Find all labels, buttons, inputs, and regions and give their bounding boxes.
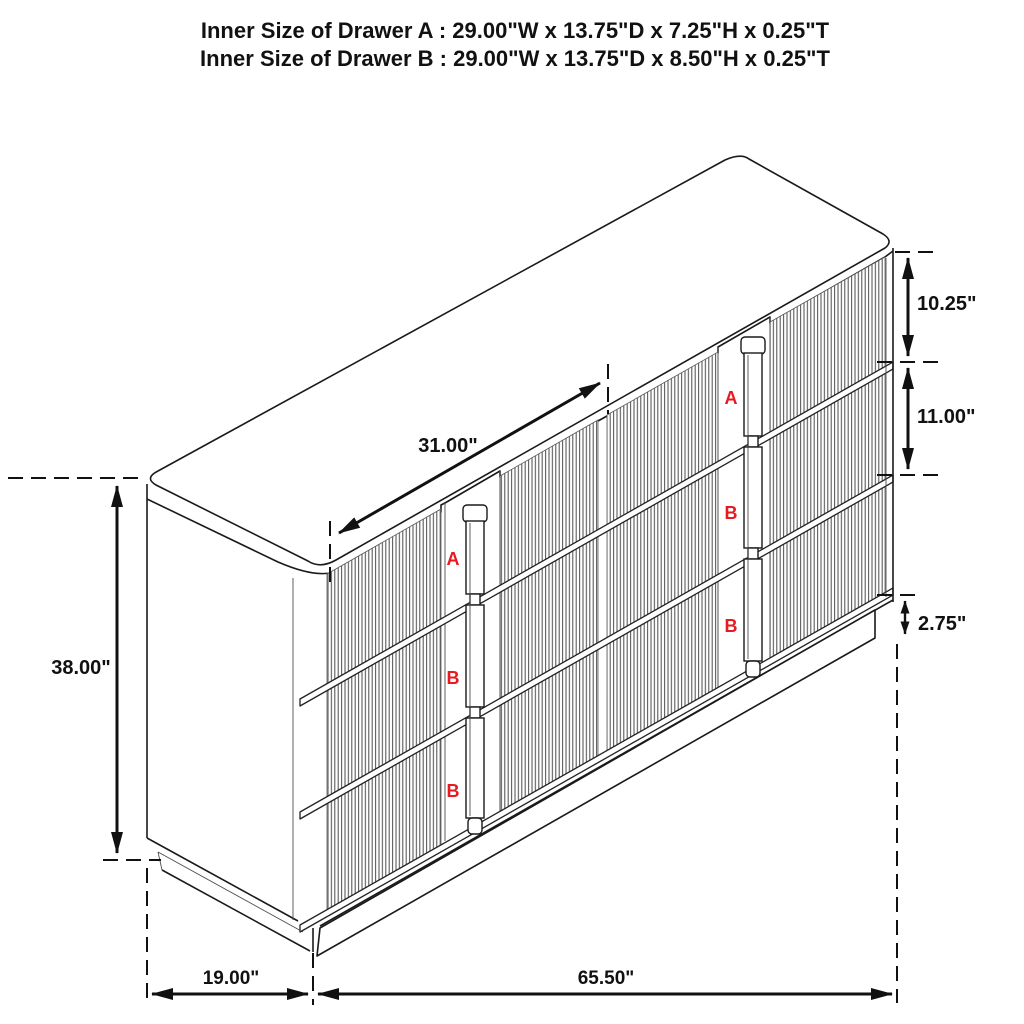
drawer-marker-left-b2: B xyxy=(447,781,460,801)
dim-top-drawer-height: 10.25" xyxy=(877,252,977,362)
dim-top-drawer-label: 10.25" xyxy=(917,293,977,315)
fluted-panel-center-right xyxy=(607,352,718,751)
drawer-marker-right-b2: B xyxy=(725,616,738,636)
right-handle-segment-b2 xyxy=(744,559,762,661)
left-handle-foot xyxy=(468,818,482,834)
dim-bottom: 19.00" 65.50" xyxy=(147,868,892,1005)
dim-width-label: 65.50" xyxy=(578,968,635,989)
right-handle-segment-a xyxy=(744,353,762,436)
left-drawer-handle xyxy=(463,505,487,834)
drawer-marker-right-a: A xyxy=(725,388,738,408)
right-handle-cap xyxy=(741,337,765,354)
drawer-marker-right-b1: B xyxy=(725,503,738,523)
dim-overall-height: 38.00" xyxy=(8,478,161,860)
drawer-marker-left-b1: B xyxy=(447,668,460,688)
dim-middle-drawer-label: 11.00" xyxy=(917,406,975,428)
right-handle-foot xyxy=(746,661,760,677)
title-drawer-b-size: Inner Size of Drawer B : 29.00"W x 13.75… xyxy=(200,46,830,71)
right-handle-segment-b1 xyxy=(744,447,762,548)
side-plinth-bottom xyxy=(162,870,310,951)
dresser-drawing: A B B A B B xyxy=(147,156,893,956)
fluted-panel-right xyxy=(770,257,885,658)
left-handle-cap xyxy=(463,505,487,522)
dim-height-label: 38.00" xyxy=(51,657,111,679)
left-handle-segment-b1 xyxy=(466,605,484,707)
dim-middle-drawer-height: 11.00" xyxy=(877,368,975,475)
title-drawer-a-size: Inner Size of Drawer A : 29.00"W x 13.75… xyxy=(201,18,830,43)
drawer-marker-left-a: A xyxy=(447,549,460,569)
dim-base-height: 2.75" xyxy=(877,595,966,1003)
side-plinth-top xyxy=(158,852,303,932)
dresser-dimension-diagram: Inner Size of Drawer A : 29.00"W x 13.75… xyxy=(0,0,1024,1024)
dim-base-label: 2.75" xyxy=(918,613,966,635)
dim-depth-label: 19.00" xyxy=(203,968,260,989)
side-bottom-edge xyxy=(147,838,298,921)
right-handle-joint-1 xyxy=(748,436,758,447)
left-handle-segment-b2 xyxy=(466,718,484,818)
fluted-panel-center-left xyxy=(500,420,598,812)
left-handle-joint-1 xyxy=(470,594,480,605)
right-drawer-handle xyxy=(741,337,765,677)
diagram-canvas: Inner Size of Drawer A : 29.00"W x 13.75… xyxy=(0,0,1024,1024)
left-handle-segment-a xyxy=(466,521,484,594)
dim-drawer-width-label: 31.00" xyxy=(418,435,478,457)
left-handle-joint-2 xyxy=(470,707,480,718)
right-handle-joint-2 xyxy=(748,548,758,559)
fluted-panel-left xyxy=(327,509,441,910)
